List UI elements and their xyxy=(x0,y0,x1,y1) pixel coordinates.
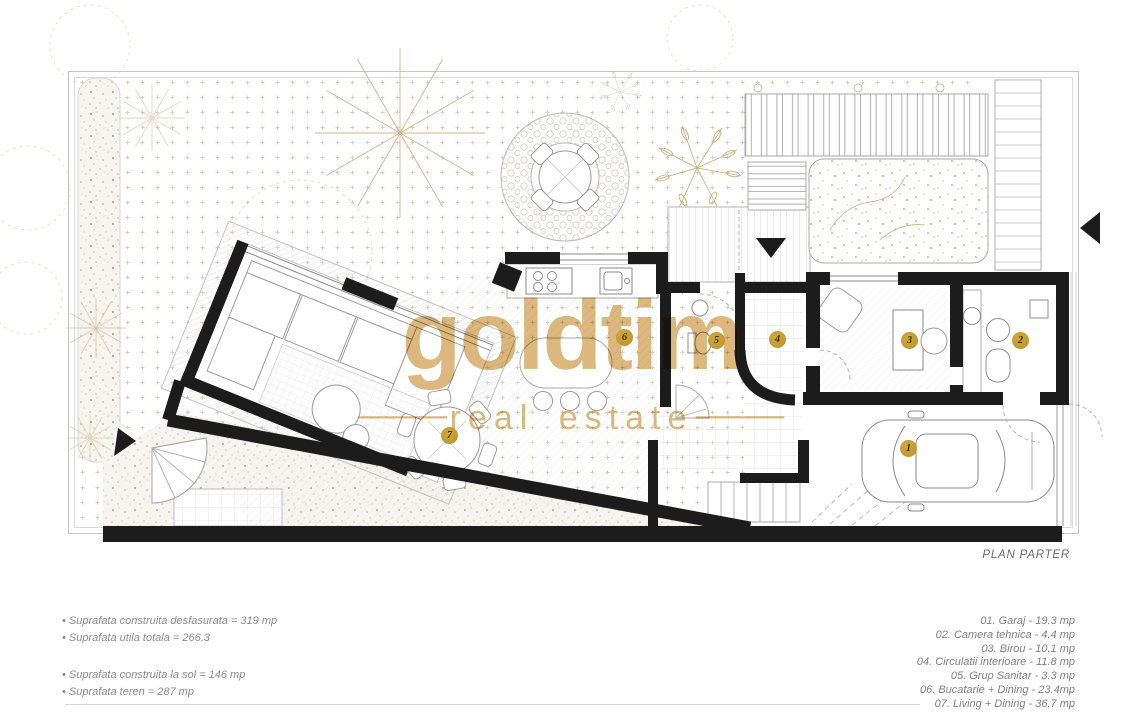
legend-item: 01. Garaj - 19.3 mp xyxy=(917,615,1075,629)
street-wall xyxy=(103,526,1062,542)
legend-item: 04. Circulatii interioare - 11.8 mp xyxy=(917,656,1075,670)
room-marker-living: 7 xyxy=(441,427,458,444)
summary-line: • Suprafata construita la sol = 146 mp xyxy=(62,667,277,684)
bar-stool xyxy=(561,392,580,411)
garden-patio xyxy=(501,113,629,241)
legend-item: 06. Bucatarie + Dining - 23.4mp xyxy=(917,684,1075,698)
room-marker-camera-tehnica: 2 xyxy=(1012,332,1029,349)
garage-car xyxy=(862,411,1054,511)
office-room xyxy=(815,285,948,390)
room-marker-garaj: 1 xyxy=(900,440,917,457)
bar-stool xyxy=(588,392,607,411)
room-legend: 01. Garaj - 19.3 mp 02. Camera tehnica -… xyxy=(917,615,1075,712)
entrance-walkway xyxy=(668,207,810,282)
garden-bed xyxy=(809,159,988,263)
bar-stool xyxy=(534,392,553,411)
room-marker-grup-sanitar: 5 xyxy=(708,332,725,349)
kitchen-island xyxy=(520,338,612,388)
floor-plan-drawing xyxy=(0,0,1143,720)
summary-line: • Suprafata construita desfasurata = 319… xyxy=(62,613,277,630)
legend-item: 02. Camera tehnica - 4.4 mp xyxy=(917,629,1075,643)
legend-item: 07. Living + Dining - 36.7 mp xyxy=(917,698,1075,712)
room-marker-circulatii: 4 xyxy=(769,331,786,348)
floor-plan-page: goldtim —real estate— 1 2 3 4 5 6 7 PLAN… xyxy=(0,0,1143,720)
room-marker-birou: 3 xyxy=(901,332,918,349)
summary-line: • Suprafata teren = 287 mp xyxy=(62,684,277,701)
area-summary: • Suprafata construita desfasurata = 319… xyxy=(62,613,277,701)
footer-divider xyxy=(65,704,920,705)
desk-chair xyxy=(921,328,947,354)
plan-title: PLAN PARTER xyxy=(982,549,1070,561)
legend-item: 05. Grup Sanitar - 3.3 mp xyxy=(917,670,1075,684)
garden-hedge xyxy=(78,78,120,462)
room-marker-bucatarie: 6 xyxy=(616,329,633,346)
summary-line: • Suprafata utila totala = 266.3 xyxy=(62,630,277,647)
legend-item: 03. Birou - 10.1 mp xyxy=(917,643,1075,657)
